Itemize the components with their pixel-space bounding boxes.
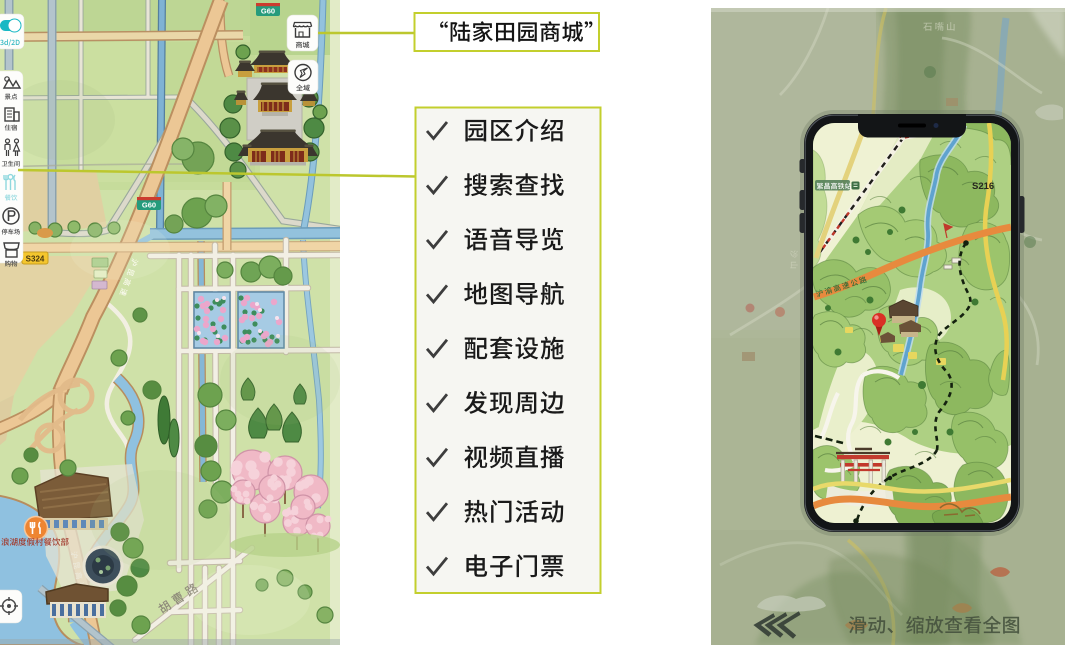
- svg-text:S216: S216: [972, 181, 994, 192]
- svg-text:S324: S324: [26, 255, 45, 264]
- svg-text:G60: G60: [261, 7, 275, 16]
- svg-text:G60: G60: [142, 201, 156, 210]
